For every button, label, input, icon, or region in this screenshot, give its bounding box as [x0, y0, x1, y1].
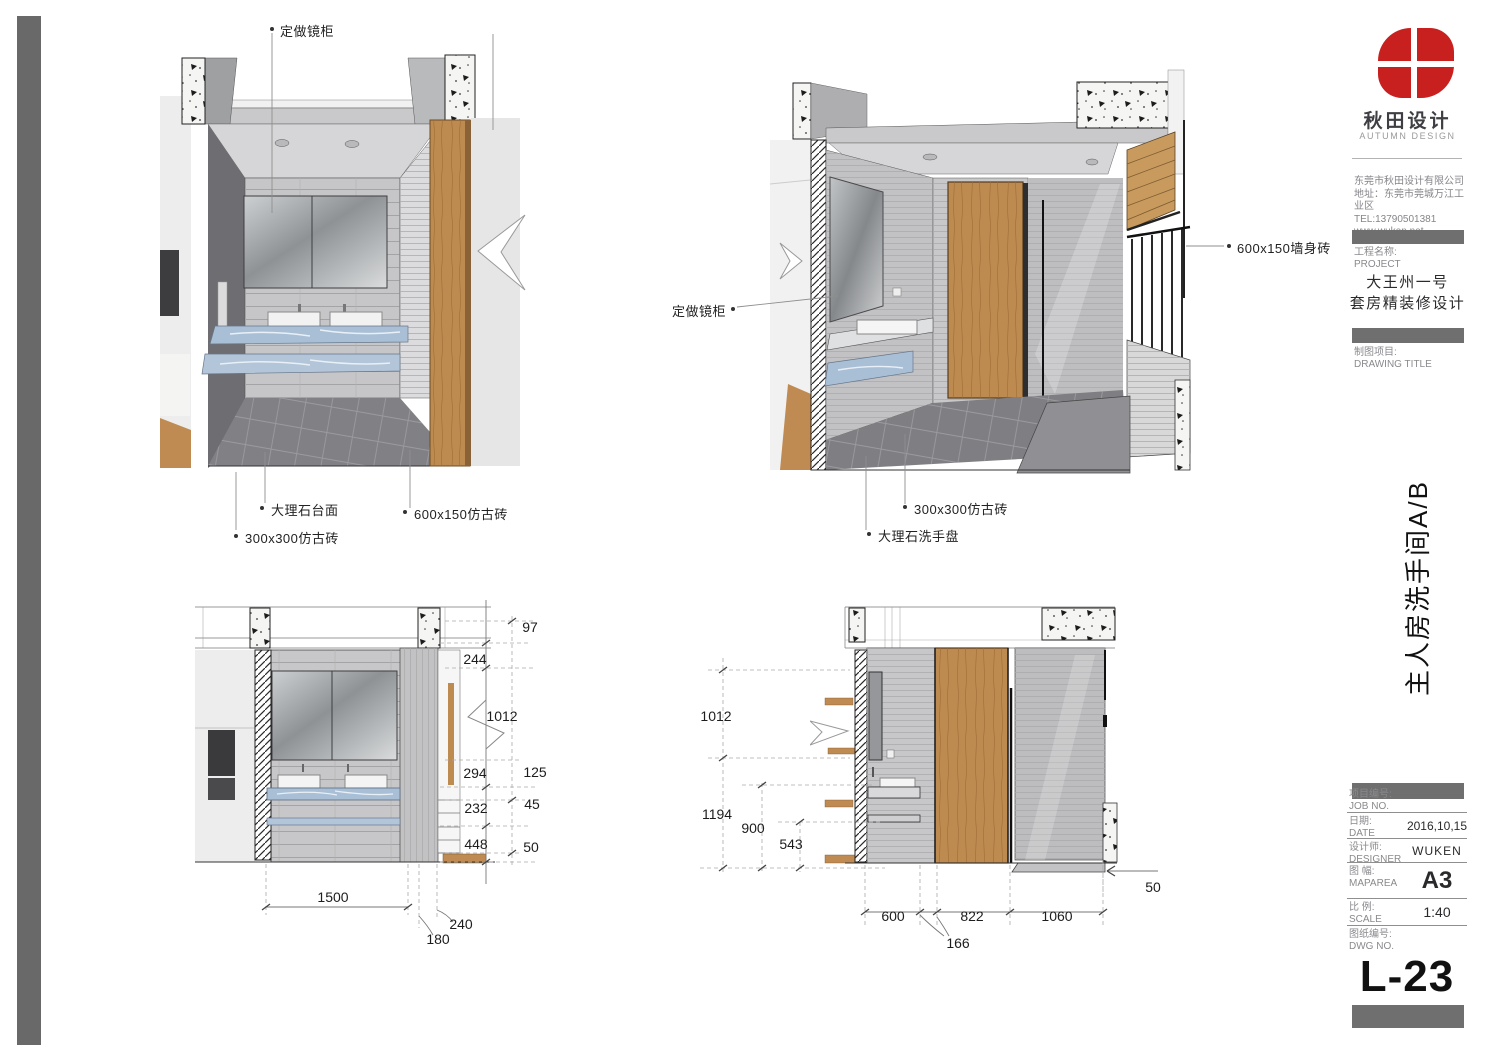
annotation-marble-counter-a: 大理石台面 [271, 500, 339, 519]
downlight [923, 154, 937, 160]
dim-1194: 1194 [702, 806, 732, 822]
drawer [868, 815, 920, 822]
concrete-column [250, 608, 270, 648]
right-tile-column [400, 648, 438, 862]
annotation-floor-tile-a: 300x300仿古砖 [245, 528, 339, 547]
top-beam [195, 607, 491, 648]
leader-dot [234, 534, 238, 538]
perspective-view-b [770, 34, 1230, 486]
concrete-block-right [1077, 82, 1182, 128]
annotation-marble-basin-b: 大理石洗手盘 [878, 526, 959, 545]
ceiling [208, 124, 440, 178]
mirror-cabinet [830, 177, 883, 322]
dwg-number: L-23 [1347, 952, 1467, 1002]
tap [298, 304, 301, 312]
company-logo-icon [1378, 28, 1454, 98]
dark-cabinet [208, 778, 235, 800]
black-railing [1127, 227, 1190, 360]
company-tel: TEL:13790501381 [1354, 214, 1470, 227]
company-address: 地址：东莞市莞城万江工业区 [1354, 189, 1470, 214]
dim-50: 50 [523, 839, 539, 855]
basin [857, 320, 917, 334]
downlight [345, 141, 359, 148]
wood-strip [448, 683, 454, 785]
leader-dot [260, 506, 264, 510]
leader-dot [403, 510, 407, 514]
dim-543: 543 [779, 836, 802, 852]
leader-dot [867, 532, 871, 536]
dim-244: 244 [463, 651, 486, 667]
dwgno-label-en: DWG NO. [1349, 941, 1407, 953]
concrete-strip [1103, 803, 1117, 862]
brand-name-en: AUTUMN DESIGN [1345, 131, 1470, 141]
marble-shelf [267, 818, 400, 825]
tap [872, 767, 874, 777]
scale-label-en: SCALE [1349, 914, 1407, 926]
tap [347, 764, 349, 772]
mirror-cabinet [244, 196, 387, 288]
basin [345, 775, 387, 788]
concrete-column-left [182, 58, 205, 124]
right-tile-wall [1015, 648, 1105, 860]
dwgno-row: 图纸编号: DWG NO. [1347, 926, 1467, 950]
job-label-cn: 项目编号: [1349, 789, 1407, 801]
maparea-label-cn: 图 幅: [1349, 866, 1407, 878]
dim-1060: 1060 [1041, 908, 1072, 924]
dim-1012b: 1012 [700, 708, 731, 724]
marble-shelf [202, 354, 400, 374]
ceiling-structure [205, 58, 445, 124]
concrete-block [1042, 608, 1115, 640]
section-break-arrow [810, 721, 848, 745]
drawing-title-label-cn: 制图项目: [1354, 347, 1432, 359]
concrete-strip-right [1175, 380, 1190, 470]
date-label-cn: 日期: [1349, 816, 1407, 828]
company-name: 东莞市秋田设计有限公司 [1354, 176, 1470, 189]
dim-294: 294 [463, 765, 486, 781]
wood-door-panel [430, 120, 471, 466]
scale-label-cn: 比 例: [1349, 902, 1407, 914]
right-tile-column [400, 141, 430, 398]
dwgno-label-cn: 图纸编号: [1349, 929, 1407, 941]
dim-448: 448 [464, 836, 487, 852]
wall-section-hatch [811, 140, 826, 470]
downlight [275, 140, 289, 147]
mirror-side [869, 672, 882, 760]
dim-125: 125 [523, 764, 546, 780]
shelf-column [438, 650, 460, 853]
job-row: 项目编号: JOB NO. [1347, 786, 1467, 813]
designer-row: 设计师: DESIGNER WUKEN [1347, 839, 1467, 863]
elevation-b [810, 595, 1170, 877]
maparea-row: 图 幅: MAPAREA A3 [1347, 863, 1467, 899]
outside-left-room [160, 96, 191, 468]
dim-166: 166 [946, 935, 969, 951]
leader-dot [1227, 244, 1231, 248]
dim-600: 600 [881, 908, 904, 924]
downlight [1086, 159, 1098, 165]
project-label-en: PROJECT [1354, 259, 1401, 271]
annotation-floor-tile-b: 300x300仿古砖 [914, 499, 1008, 518]
drawing-title-label-en: DRAWING TITLE [1354, 359, 1432, 371]
dim-240: 240 [449, 916, 472, 932]
shower-tray [1012, 863, 1105, 872]
section-bar [1352, 328, 1464, 343]
wall-socket [893, 288, 901, 296]
section-bar [1352, 1005, 1464, 1028]
designer-value: WUKEN [1407, 839, 1467, 862]
drawing-sheet: 定做镜柜 大理石台面 600x150仿古砖 300x300仿古砖 定做镜柜 60… [0, 0, 1500, 1060]
leader-dot [731, 307, 735, 311]
dark-cabinet [208, 730, 235, 776]
annotation-mirror-cabinet-b: 定做镜柜 [672, 301, 726, 320]
towel [218, 282, 227, 328]
job-label-en: JOB NO. [1349, 801, 1407, 813]
door-handle [1103, 715, 1107, 727]
binding-edge-bar [17, 16, 41, 1045]
dim-180: 180 [426, 931, 449, 947]
annotation-wall-tile-b: 600x150墙身砖 [1237, 238, 1331, 257]
countertop [868, 787, 920, 798]
concrete-column [418, 608, 440, 648]
mirror-cabinet [272, 671, 397, 760]
switch [887, 750, 894, 758]
marble-countertop [210, 326, 408, 344]
dim-50b: 50 [1145, 879, 1161, 895]
project-name-line1: 大王州一号 [1345, 271, 1470, 292]
leader-dot [270, 27, 274, 31]
brand-name-cn: 秋田设计 [1345, 106, 1470, 133]
scale-value: 1:40 [1407, 899, 1467, 925]
floor-tiles [208, 398, 460, 466]
maparea-value: A3 [1407, 863, 1467, 898]
outside-right-wall [471, 118, 520, 466]
date-label-en: DATE [1349, 828, 1407, 840]
dim-1500: 1500 [317, 889, 348, 905]
maparea-label-en: MAPAREA [1349, 878, 1407, 890]
marble-countertop [267, 788, 400, 800]
annotation-wall-tile-a: 600x150仿古砖 [414, 504, 508, 523]
project-name-line2: 套房精装修设计 [1345, 292, 1470, 313]
date-row: 日期: DATE 2016,10,15 [1347, 813, 1467, 839]
concrete-column-left [793, 83, 811, 139]
annotation-mirror-cabinet-a: 定做镜柜 [280, 21, 334, 40]
dim-822: 822 [960, 908, 983, 924]
job-value [1407, 786, 1467, 812]
tap [343, 304, 346, 312]
leader-dot [903, 505, 907, 509]
tap [302, 764, 304, 772]
designer-label-cn: 设计师: [1349, 842, 1407, 854]
dim-900: 900 [741, 820, 764, 836]
wall-section-hatch [255, 650, 271, 860]
section-bar [1352, 230, 1464, 244]
outside-left-room [770, 140, 811, 470]
dim-45: 45 [524, 796, 540, 812]
sheet-title-vertical: 主人房洗手间A/B [1398, 433, 1428, 743]
wood-door [935, 648, 1008, 863]
basin [278, 775, 320, 788]
outside-left-shelves [810, 698, 855, 863]
date-value: 2016,10,15 [1407, 813, 1467, 838]
wall-section-hatch [855, 650, 867, 862]
dim-1012: 1012 [486, 708, 517, 724]
perspective-view-a [160, 34, 528, 486]
dim-97: 97 [522, 619, 538, 635]
wood-door [948, 182, 1028, 398]
project-label-cn: 工程名称: [1354, 247, 1401, 259]
dim-232: 232 [464, 800, 487, 816]
basin [880, 778, 915, 787]
concrete-column [849, 608, 865, 642]
divider [1352, 158, 1462, 159]
scale-row: 比 例: SCALE 1:40 [1347, 899, 1467, 926]
elevation-a [195, 598, 495, 868]
outside-left [195, 650, 255, 862]
concrete-column-right [445, 55, 475, 124]
